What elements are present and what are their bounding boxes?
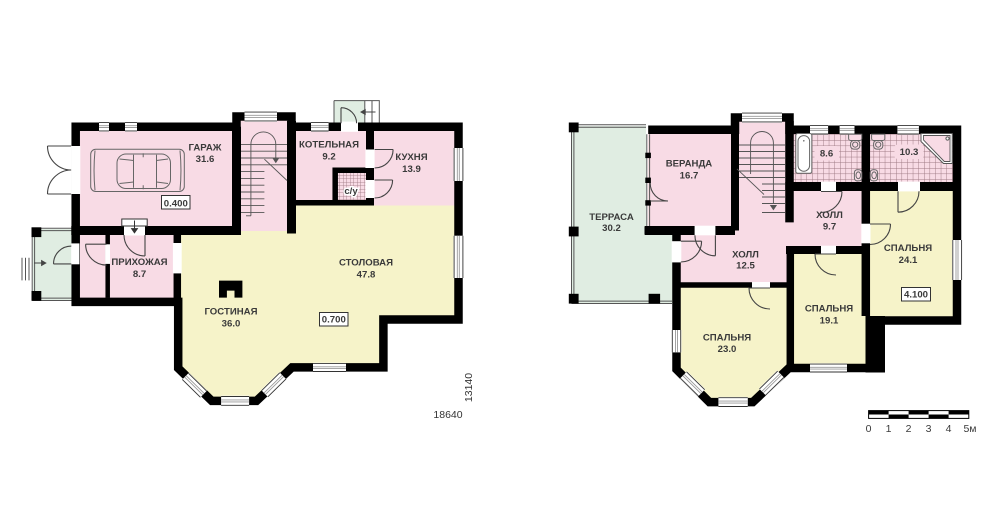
svg-text:0.400: 0.400	[164, 198, 188, 209]
svg-text:10.3: 10.3	[900, 147, 919, 158]
svg-text:47.8: 47.8	[357, 270, 376, 281]
svg-text:24.1: 24.1	[899, 255, 918, 266]
svg-text:ВЕРАНДА: ВЕРАНДА	[666, 159, 713, 170]
svg-text:5м: 5м	[963, 423, 976, 435]
svg-text:3: 3	[926, 423, 932, 435]
svg-text:ХОЛЛ: ХОЛЛ	[732, 250, 759, 261]
svg-text:СПАЛЬНЯ: СПАЛЬНЯ	[884, 243, 932, 254]
svg-text:с/у: с/у	[344, 186, 358, 197]
svg-text:ГАРАЖ: ГАРАЖ	[189, 143, 222, 154]
svg-text:СПАЛЬНЯ: СПАЛЬНЯ	[805, 304, 853, 315]
svg-text:13.9: 13.9	[402, 164, 421, 175]
svg-text:4: 4	[946, 423, 952, 435]
svg-text:ХОЛЛ: ХОЛЛ	[816, 210, 843, 221]
svg-text:1: 1	[886, 423, 892, 435]
svg-text:2: 2	[906, 423, 912, 435]
svg-text:ТЕРРАСА: ТЕРРАСА	[589, 212, 634, 223]
svg-text:18640: 18640	[433, 409, 462, 421]
svg-text:4.100: 4.100	[904, 289, 928, 300]
svg-text:ГОСТИНАЯ: ГОСТИНАЯ	[205, 307, 258, 318]
svg-text:КОТЕЛЬНАЯ: КОТЕЛЬНАЯ	[299, 139, 359, 150]
svg-text:9.2: 9.2	[322, 151, 335, 162]
svg-text:31.6: 31.6	[196, 154, 215, 165]
svg-text:СТОЛОВАЯ: СТОЛОВАЯ	[339, 258, 393, 269]
svg-text:23.0: 23.0	[718, 344, 737, 355]
svg-text:9.7: 9.7	[823, 222, 836, 233]
svg-text:КУХНЯ: КУХНЯ	[395, 152, 427, 163]
svg-text:СПАЛЬНЯ: СПАЛЬНЯ	[703, 333, 751, 344]
svg-text:0: 0	[866, 423, 872, 435]
svg-text:8.6: 8.6	[820, 148, 833, 159]
svg-text:12.5: 12.5	[736, 261, 755, 272]
svg-text:30.2: 30.2	[602, 223, 621, 234]
svg-text:36.0: 36.0	[222, 319, 241, 330]
svg-text:8.7: 8.7	[133, 269, 146, 280]
svg-text:ПРИХОЖАЯ: ПРИХОЖАЯ	[111, 257, 167, 268]
svg-text:16.7: 16.7	[680, 170, 699, 181]
svg-text:19.1: 19.1	[820, 316, 839, 327]
svg-text:0.700: 0.700	[322, 315, 346, 326]
svg-text:13140: 13140	[463, 373, 475, 402]
